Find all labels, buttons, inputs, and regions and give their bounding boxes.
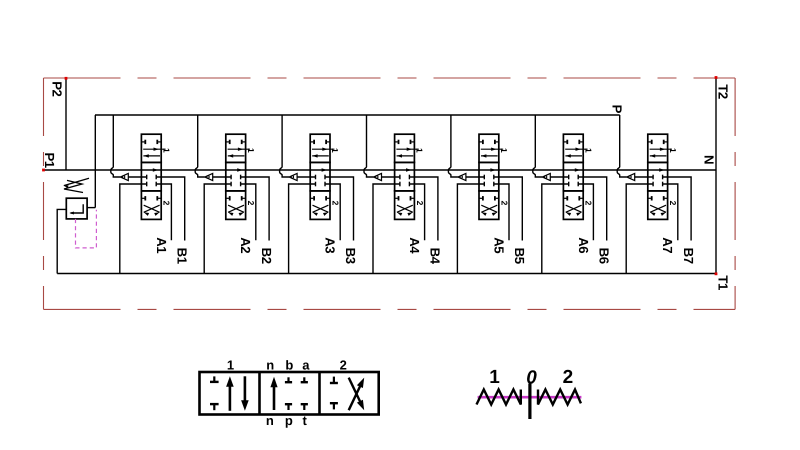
svg-text:2: 2 bbox=[668, 201, 678, 206]
svg-text:2: 2 bbox=[162, 201, 172, 206]
svg-text:n: n bbox=[266, 413, 274, 428]
svg-text:A5: A5 bbox=[491, 237, 506, 253]
svg-text:T2: T2 bbox=[715, 84, 730, 99]
svg-text:A2: A2 bbox=[238, 237, 253, 253]
svg-text:0: 0 bbox=[526, 368, 537, 389]
svg-text:N: N bbox=[702, 155, 717, 164]
svg-text:1: 1 bbox=[161, 148, 171, 153]
svg-text:T1: T1 bbox=[716, 275, 731, 290]
svg-text:n: n bbox=[266, 358, 274, 373]
svg-text:2: 2 bbox=[340, 358, 347, 373]
svg-text:1: 1 bbox=[668, 148, 678, 153]
svg-text:1: 1 bbox=[227, 358, 234, 373]
svg-text:1: 1 bbox=[489, 367, 500, 388]
svg-text:2: 2 bbox=[563, 367, 574, 388]
svg-text:b: b bbox=[285, 358, 293, 373]
svg-text:A3: A3 bbox=[323, 237, 338, 253]
svg-text:P: P bbox=[610, 105, 625, 114]
svg-text:p: p bbox=[285, 413, 293, 428]
svg-text:a: a bbox=[302, 358, 310, 373]
svg-text:B2: B2 bbox=[259, 248, 274, 264]
svg-text:B7: B7 bbox=[681, 248, 696, 264]
svg-text:1: 1 bbox=[330, 148, 340, 153]
svg-text:1: 1 bbox=[246, 148, 256, 153]
svg-text:B6: B6 bbox=[596, 248, 611, 264]
svg-text:B4: B4 bbox=[428, 248, 443, 265]
svg-text:2: 2 bbox=[246, 201, 256, 206]
svg-text:1: 1 bbox=[415, 148, 425, 153]
svg-text:P1: P1 bbox=[42, 152, 57, 167]
svg-text:B5: B5 bbox=[512, 248, 527, 264]
svg-text:B3: B3 bbox=[343, 248, 358, 264]
svg-text:A7: A7 bbox=[660, 237, 675, 253]
svg-text:2: 2 bbox=[415, 201, 425, 206]
svg-text:2: 2 bbox=[331, 201, 341, 206]
svg-text:2: 2 bbox=[499, 201, 509, 206]
svg-text:2: 2 bbox=[584, 201, 594, 206]
svg-text:1: 1 bbox=[583, 148, 593, 153]
svg-text:B1: B1 bbox=[174, 248, 189, 264]
svg-text:t: t bbox=[303, 413, 308, 428]
svg-text:A1: A1 bbox=[154, 237, 169, 253]
svg-text:1: 1 bbox=[499, 148, 509, 153]
svg-text:A6: A6 bbox=[576, 237, 591, 253]
svg-text:P2: P2 bbox=[50, 81, 65, 96]
svg-text:A4: A4 bbox=[407, 237, 422, 254]
